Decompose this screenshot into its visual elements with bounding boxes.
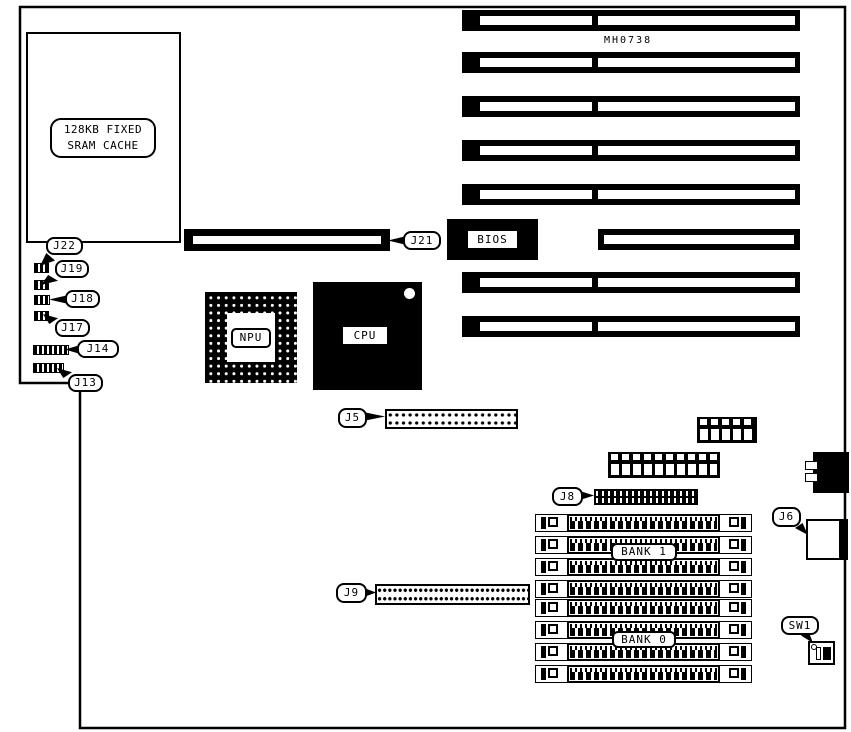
power-connector-holes — [611, 464, 717, 475]
sram-cache-label: 128KB FIXED SRAM CACHE — [50, 118, 156, 158]
isa-slot-5 — [462, 184, 800, 205]
jumper-j14 — [33, 345, 69, 355]
bank0-label: BANK 0 — [612, 631, 676, 648]
callout-sw1: SW1 — [781, 616, 819, 635]
simm-pin-stripes — [570, 521, 717, 529]
simm-latch — [548, 602, 558, 612]
npu-socket-center: NPU — [227, 313, 275, 362]
power-connector-holes — [700, 429, 754, 440]
simm-socket — [535, 580, 752, 598]
isa-slot-3 — [462, 96, 800, 117]
simm-latch — [729, 583, 739, 593]
simm-post — [741, 646, 746, 658]
callout-j19: J19 — [55, 260, 89, 278]
isa-slot-1 — [462, 10, 800, 31]
power-connector-large — [608, 452, 720, 478]
simm-latch — [548, 668, 558, 678]
part-number-text: MH0738 — [604, 35, 652, 46]
callout-j21: J21 — [403, 231, 441, 250]
j21-connector-slot — [193, 236, 381, 244]
callout-j18: J18 — [65, 290, 100, 308]
simm-post — [541, 602, 546, 614]
cpu-chip: CPU — [313, 282, 422, 390]
simm-post — [741, 668, 746, 680]
simm-pin-stripes — [570, 672, 717, 680]
simm-post — [741, 602, 746, 614]
simm-post — [541, 668, 546, 680]
j6-connector — [806, 519, 848, 560]
slot-key-right — [598, 322, 795, 331]
callout-j6: J6 — [772, 507, 801, 527]
simm-post — [741, 624, 746, 636]
callout-j5: J5 — [338, 408, 367, 428]
slot-key-left — [480, 102, 592, 111]
simm-latch — [548, 583, 558, 593]
callout-j17: J17 — [55, 319, 90, 337]
simm-latch — [548, 561, 558, 571]
isa-slot-4 — [462, 140, 800, 161]
slot-key-left — [480, 190, 592, 199]
callout-j22: J22 — [46, 237, 83, 255]
bios-chip: BIOS — [447, 219, 538, 260]
simm-post — [541, 539, 546, 551]
isa-slot-6-8bit — [598, 229, 800, 250]
simm-latch — [729, 539, 739, 549]
simm-post — [541, 583, 546, 595]
simm-pins — [567, 514, 720, 532]
simm-post — [741, 517, 746, 529]
sw1-switch-off — [816, 647, 821, 660]
simm-latch — [729, 668, 739, 678]
simm-post — [741, 539, 746, 551]
sram-cache-label-line1: 128KB FIXED — [52, 122, 154, 138]
isa-slot-2 — [462, 52, 800, 73]
simm-post — [541, 646, 546, 658]
simm-pins — [567, 665, 720, 683]
simm-pin-stripes — [570, 650, 717, 658]
simm-post — [541, 624, 546, 636]
power-connector-tabs — [611, 454, 717, 460]
sw1-dip-switch — [808, 641, 835, 665]
simm-pins — [567, 599, 720, 617]
slot-key-right — [598, 146, 795, 155]
j8-pin-row — [596, 491, 696, 496]
slot-key — [604, 235, 794, 244]
slot-key-right — [598, 16, 795, 25]
simm-pin-stripes — [570, 565, 717, 573]
simm-latch — [548, 624, 558, 634]
simm-socket — [535, 514, 752, 532]
sw1-switch-on — [823, 647, 831, 660]
callout-j14: J14 — [77, 340, 119, 358]
simm-post — [541, 517, 546, 529]
callout-j13: J13 — [68, 374, 103, 392]
simm-latch — [548, 517, 558, 527]
simm-socket — [535, 665, 752, 683]
keyboard-connector-tab — [805, 473, 818, 482]
simm-socket — [535, 599, 752, 617]
simm-pins — [567, 580, 720, 598]
bank1-label: BANK 1 — [611, 543, 677, 561]
jumper-j18 — [34, 295, 50, 305]
power-connector-small — [697, 417, 757, 443]
callout-j9: J9 — [336, 583, 367, 603]
slot-key-right — [598, 58, 795, 67]
simm-latch — [729, 624, 739, 634]
j21-connector — [184, 229, 390, 251]
keyboard-connector-tab — [805, 461, 818, 470]
simm-latch — [729, 561, 739, 571]
slot-key-right — [598, 102, 795, 111]
bios-chip-label: BIOS — [468, 231, 517, 248]
j9-pin-header — [375, 584, 530, 605]
slot-key-left — [480, 146, 592, 155]
keyboard-connector — [813, 452, 849, 493]
power-connector-tabs — [700, 419, 754, 425]
simm-pin-stripes — [570, 587, 717, 595]
slot-key-left — [480, 322, 592, 331]
callout-j8: J8 — [552, 487, 583, 506]
simm-latch — [729, 517, 739, 527]
cpu-pin1-dot — [404, 288, 415, 299]
slot-key-left — [480, 58, 592, 67]
slot-key-right — [598, 190, 795, 199]
simm-post — [741, 561, 746, 573]
simm-latch — [548, 646, 558, 656]
isa-slot-8 — [462, 316, 800, 337]
j5-pin-header — [385, 409, 518, 429]
sram-cache-label-line2: SRAM CACHE — [52, 138, 154, 154]
simm-latch — [548, 539, 558, 549]
simm-latch — [729, 646, 739, 656]
simm-pin-stripes — [570, 606, 717, 614]
j8-connector — [594, 489, 698, 505]
sram-cache-area: 128KB FIXED SRAM CACHE — [26, 32, 181, 243]
npu-label: NPU — [231, 328, 271, 348]
slot-key-left — [480, 16, 592, 25]
isa-slot-7 — [462, 272, 800, 293]
simm-post — [541, 561, 546, 573]
simm-post — [741, 583, 746, 595]
slot-key-right — [598, 278, 795, 287]
npu-socket: NPU — [205, 292, 297, 383]
j6-edge-band — [839, 521, 846, 558]
j8-pin-row — [596, 498, 696, 503]
motherboard-diagram: 128KB FIXED SRAM CACHE MH0738 BIOS NPU C… — [0, 0, 851, 732]
cpu-label: CPU — [343, 327, 387, 344]
simm-latch — [729, 602, 739, 612]
slot-key-left — [480, 278, 592, 287]
